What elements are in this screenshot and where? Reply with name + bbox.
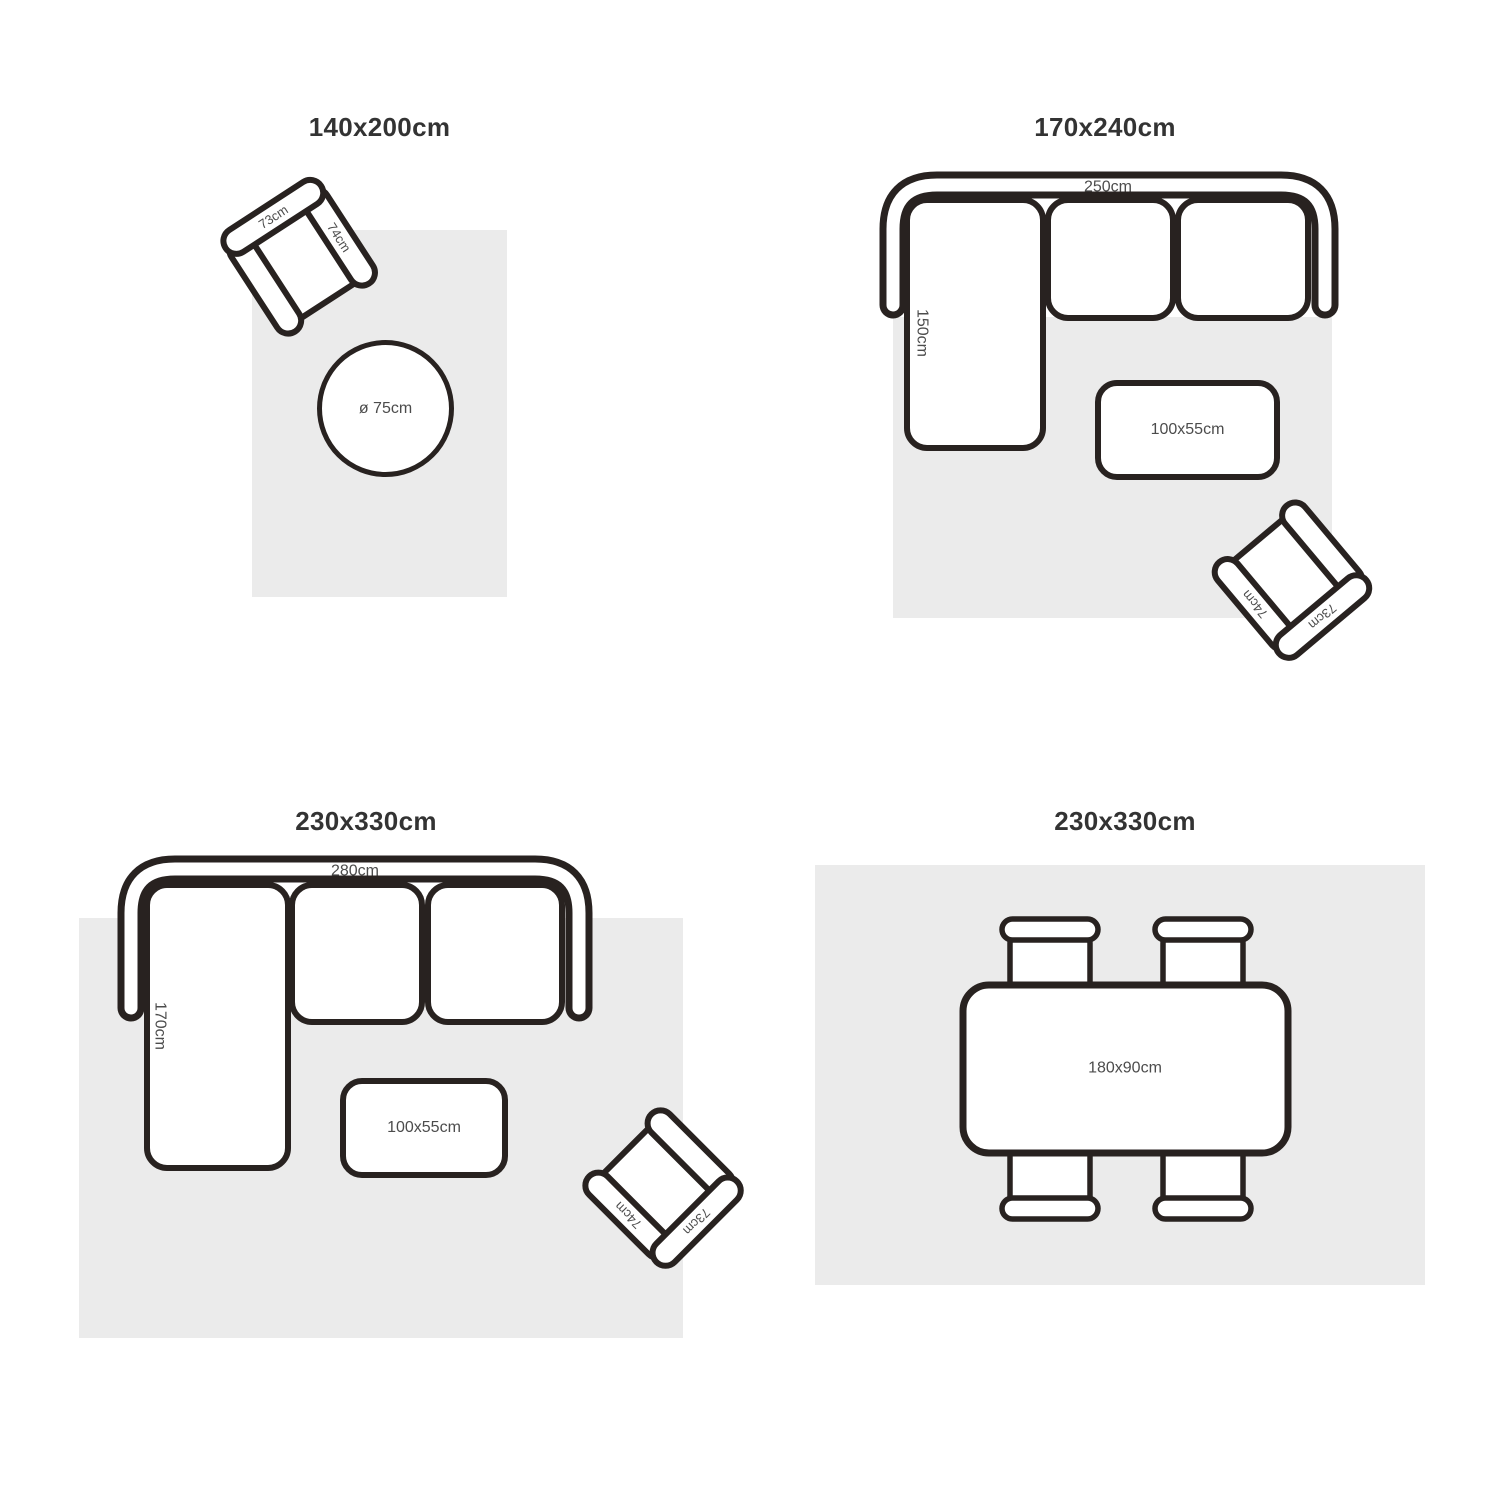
sofa-width-label: 250cm bbox=[1084, 179, 1132, 196]
rug-title-dining: 230x330cm bbox=[820, 806, 1430, 837]
rug-title-medium: 170x240cm bbox=[885, 112, 1325, 143]
sofa-depth-label: 170cm bbox=[152, 1002, 169, 1050]
dining-chair-backrest bbox=[1155, 919, 1251, 940]
coffee-table-label: 100x55cm bbox=[1151, 421, 1225, 439]
sofa-cushion bbox=[428, 885, 562, 1022]
rug-size-guide: { "colors": { "background": "#ffffff", "… bbox=[0, 0, 1500, 1500]
coffee-table: 100x55cm bbox=[1095, 380, 1280, 480]
round-side-table: ø 75cm bbox=[317, 340, 454, 477]
coffee-table: 100x55cm bbox=[340, 1078, 508, 1178]
coffee-table-label: 100x55cm bbox=[387, 1119, 461, 1137]
round-side-table-label: ø 75cm bbox=[359, 400, 412, 418]
dining-chair-backrest bbox=[1002, 1198, 1098, 1219]
sofa-cushion bbox=[1178, 200, 1308, 318]
dining-chair-backrest bbox=[1002, 919, 1098, 940]
dining-chair-backrest bbox=[1155, 1198, 1251, 1219]
sofa-cushion bbox=[292, 885, 422, 1022]
sofa-width-label: 280cm bbox=[331, 863, 379, 880]
sofa-depth-label: 150cm bbox=[914, 309, 931, 357]
dining-table-label: 180x90cm bbox=[1088, 1060, 1162, 1077]
dining-set: 180x90cm bbox=[940, 908, 1310, 1228]
rug-title-small: 140x200cm bbox=[252, 112, 507, 143]
rug-title-large: 230x330cm bbox=[64, 806, 668, 837]
sofa-cushion bbox=[1048, 200, 1173, 318]
